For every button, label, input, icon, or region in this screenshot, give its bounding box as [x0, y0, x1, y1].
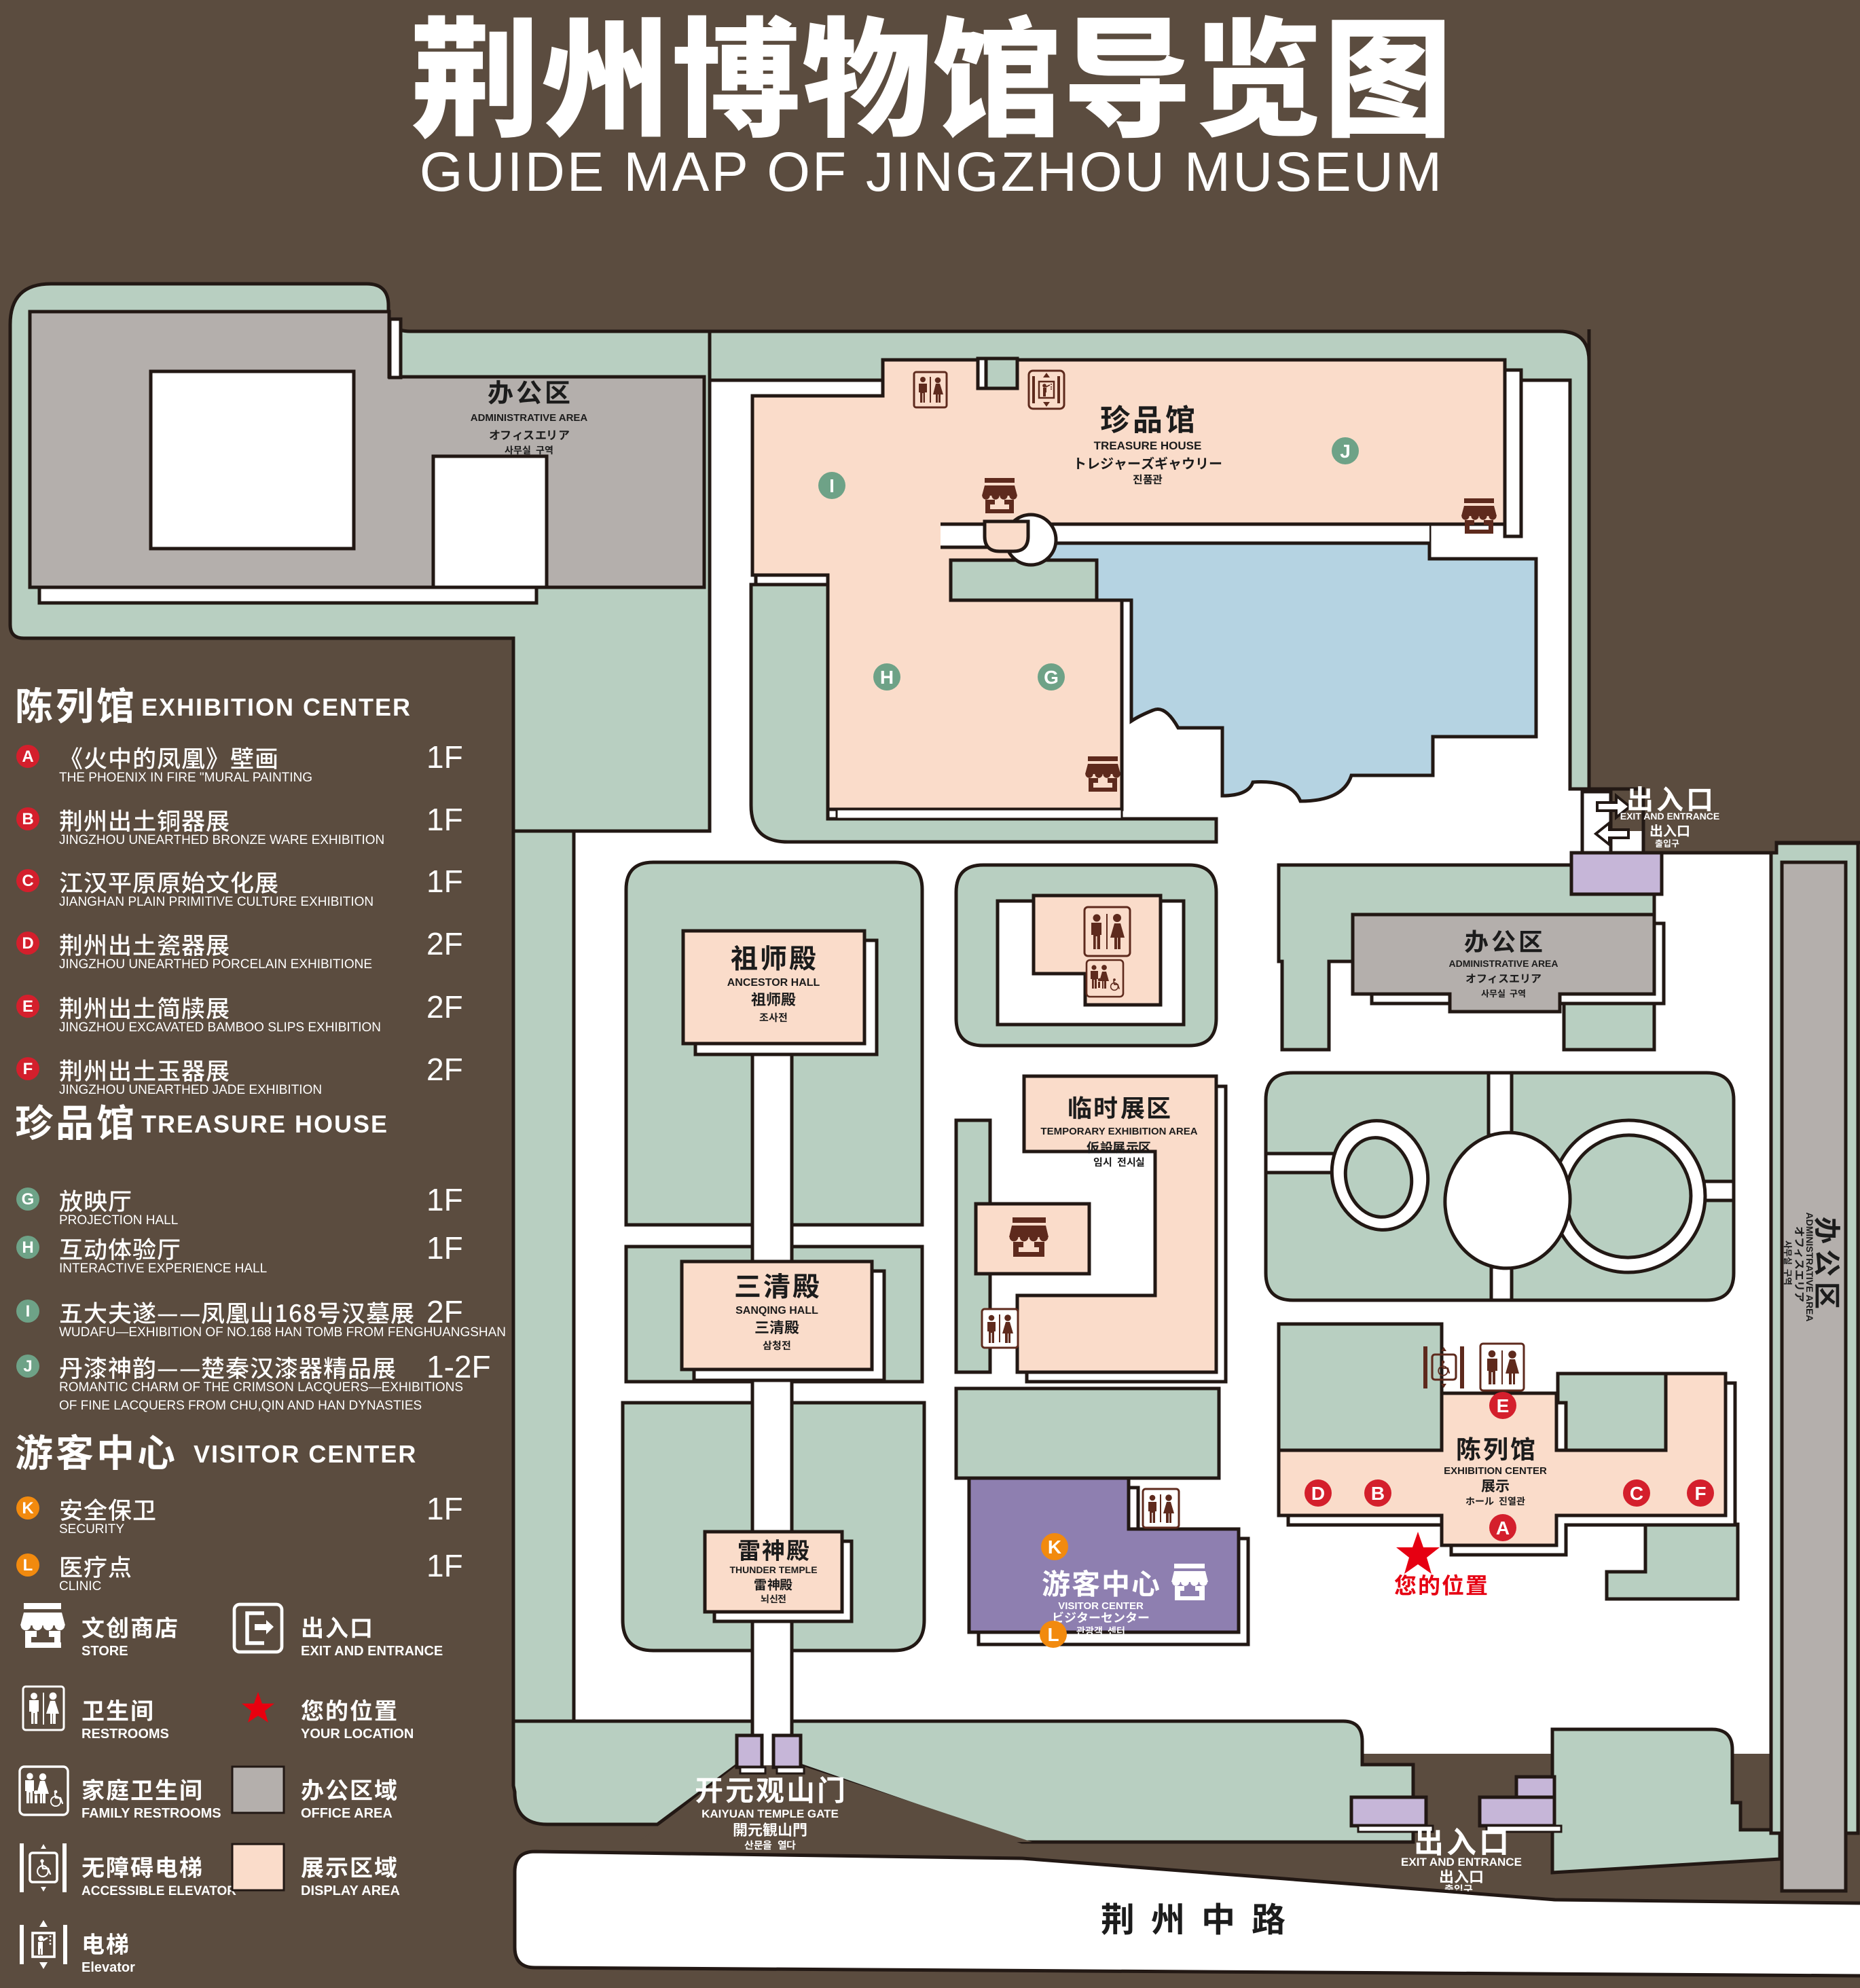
svg-text:2F: 2F	[426, 1294, 463, 1329]
svg-text:PROJECTION HALL: PROJECTION HALL	[59, 1213, 178, 1228]
svg-text:E: E	[1497, 1395, 1510, 1416]
svg-text:A: A	[1496, 1517, 1510, 1539]
svg-text:1F: 1F	[426, 1230, 463, 1266]
svg-text:J: J	[23, 1357, 32, 1376]
svg-text:D: D	[22, 934, 33, 953]
svg-text:INTERACTIVE EXPERIENCE HALL: INTERACTIVE EXPERIENCE HALL	[59, 1262, 267, 1276]
svg-text:EXIT AND ENTRANCE: EXIT AND ENTRANCE	[1401, 1856, 1522, 1869]
svg-text:Elevator: Elevator	[81, 1960, 135, 1975]
svg-text:SANQING HALL: SANQING HALL	[735, 1305, 818, 1317]
svg-text:EXIT AND ENTRANCE: EXIT AND ENTRANCE	[1620, 811, 1720, 822]
svg-text:JINGZHOU EXCAVATED BAMBOO SLIP: JINGZHOU EXCAVATED BAMBOO SLIPS EXHIBITI…	[59, 1020, 381, 1035]
svg-text:TEMPORARY EXHIBITION AREA: TEMPORARY EXHIBITION AREA	[1040, 1126, 1197, 1137]
svg-text:E: E	[22, 997, 33, 1016]
svg-text:JINGZHOU UNEARTHED BRONZE WARE: JINGZHOU UNEARTHED BRONZE WARE EXHIBITIO…	[59, 833, 384, 847]
svg-text:DISPLAY AREA: DISPLAY AREA	[301, 1883, 400, 1898]
svg-text:SECURITY: SECURITY	[59, 1522, 124, 1536]
svg-text:JIANGHAN PLAIN PRIMITIVE CULTU: JIANGHAN PLAIN PRIMITIVE CULTURE EXHIBIT…	[59, 895, 373, 909]
svg-text:TREASURE HOUSE: TREASURE HOUSE	[1094, 439, 1202, 452]
svg-text:G: G	[22, 1190, 35, 1209]
svg-text:EXIT AND ENTRANCE: EXIT AND ENTRANCE	[301, 1644, 443, 1659]
svg-text:F: F	[23, 1060, 33, 1078]
svg-text:EXHIBITION CENTER: EXHIBITION CENTER	[141, 693, 412, 721]
svg-text:1F: 1F	[426, 1548, 463, 1583]
svg-text:L: L	[1047, 1624, 1059, 1645]
svg-text:ADMINISTRATIVE AREA: ADMINISTRATIVE AREA	[1449, 958, 1558, 969]
svg-text:JINGZHOU UNEARTHED JADE EXHIBI: JINGZHOU UNEARTHED JADE EXHIBITION	[59, 1083, 322, 1097]
svg-text:GUIDE MAP OF JINGZHOU MUSEUM: GUIDE MAP OF JINGZHOU MUSEUM	[420, 141, 1444, 203]
svg-text:ACCESSIBLE ELEVATOR: ACCESSIBLE ELEVATOR	[81, 1884, 236, 1898]
svg-text:EXHIBITION CENTER: EXHIBITION CENTER	[1444, 1465, 1547, 1477]
svg-text:A: A	[22, 748, 33, 766]
svg-text:ROMANTIC CHARM OF THE CRIMSON: ROMANTIC CHARM OF THE CRIMSON LACQUERS—E…	[59, 1380, 463, 1395]
svg-text:YOUR LOCATION: YOUR LOCATION	[301, 1727, 414, 1742]
svg-text:K: K	[1048, 1536, 1061, 1558]
svg-text:THE PHOENIX IN FIRE "MURAL PAI: THE PHOENIX IN FIRE "MURAL PAINTING	[59, 771, 312, 785]
svg-text:L: L	[23, 1556, 33, 1575]
svg-text:OFFICE AREA: OFFICE AREA	[301, 1806, 393, 1821]
svg-text:B: B	[1371, 1483, 1385, 1504]
svg-text:J: J	[1340, 441, 1351, 462]
svg-text:K: K	[22, 1499, 34, 1517]
svg-text:I: I	[829, 475, 835, 496]
svg-text:C: C	[22, 872, 33, 890]
svg-text:D: D	[1311, 1483, 1325, 1504]
svg-text:H: H	[880, 667, 894, 688]
svg-text:2F: 2F	[426, 926, 463, 961]
svg-text:TREASURE HOUSE: TREASURE HOUSE	[141, 1110, 388, 1138]
svg-text:2F: 2F	[426, 989, 463, 1025]
svg-text:C: C	[1630, 1483, 1643, 1504]
svg-text:1F: 1F	[426, 864, 463, 899]
svg-text:ADMINISTRATIVE AREA: ADMINISTRATIVE AREA	[471, 412, 588, 424]
svg-text:G: G	[1044, 667, 1059, 688]
svg-text:CLINIC: CLINIC	[59, 1579, 101, 1594]
svg-text:KAIYUAN TEMPLE GATE: KAIYUAN TEMPLE GATE	[701, 1807, 839, 1820]
svg-text:ADMINISTRATIVE AREA: ADMINISTRATIVE AREA	[1804, 1213, 1815, 1322]
svg-text:OF FINE LACQUERS FROM CHU,QIN: OF FINE LACQUERS FROM CHU,QIN AND HAN DY…	[59, 1399, 422, 1413]
svg-text:2F: 2F	[426, 1052, 463, 1087]
svg-text:ANCESTOR HALL: ANCESTOR HALL	[727, 977, 820, 989]
svg-text:F: F	[1694, 1483, 1706, 1504]
svg-text:1-2F: 1-2F	[426, 1349, 491, 1384]
svg-text:B: B	[22, 810, 33, 828]
svg-text:H: H	[22, 1238, 33, 1257]
svg-text:I: I	[26, 1302, 31, 1321]
svg-text:1F: 1F	[426, 802, 463, 837]
svg-text:VISITOR CENTER: VISITOR CENTER	[194, 1440, 417, 1468]
svg-text:1F: 1F	[426, 1491, 463, 1526]
svg-text:FAMILY RESTROOMS: FAMILY RESTROOMS	[81, 1806, 221, 1821]
svg-text:1F: 1F	[426, 1182, 463, 1217]
svg-text:STORE: STORE	[81, 1644, 128, 1659]
svg-text:THUNDER TEMPLE: THUNDER TEMPLE	[729, 1564, 817, 1575]
svg-text:JINGZHOU UNEARTHED PORCELAIN E: JINGZHOU UNEARTHED PORCELAIN EXHIBITIONE	[59, 957, 372, 972]
svg-text:RESTROOMS: RESTROOMS	[81, 1727, 169, 1742]
svg-text:VISITOR CENTER: VISITOR CENTER	[1058, 1600, 1144, 1612]
svg-text:1F: 1F	[426, 739, 463, 775]
